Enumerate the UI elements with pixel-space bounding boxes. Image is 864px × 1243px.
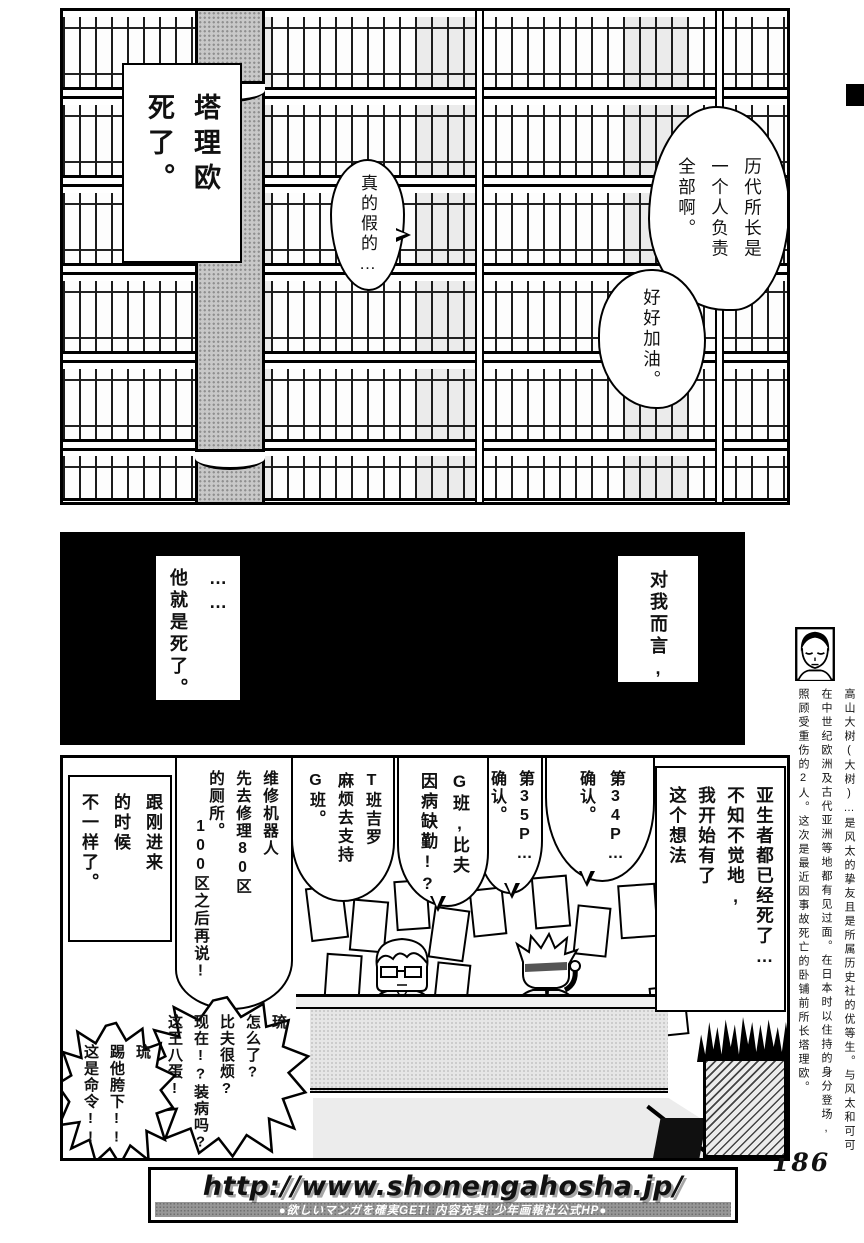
bubble-robot: 维修机器人 先去修理80区 的厕所。 100区之后再说!: [175, 755, 293, 1010]
site-tagline: ●欲しいマンガを確実GET! 内容充実! 少年画報社公式HP●: [155, 1202, 731, 1217]
planter-pot: [703, 1058, 787, 1158]
portrait-icon: [795, 627, 835, 681]
paper: [617, 883, 659, 940]
box-different-text: 跟刚进来 的时候 不一样了。: [72, 777, 168, 893]
bubble-goodluck: 好好加油。: [598, 269, 706, 409]
bubble-t-class-text: T班吉罗 麻烦去支持 G班。: [301, 755, 385, 865]
box-for-me: 对我而言,: [616, 554, 700, 684]
panel-office: 亚生者都已经死了… 不知不觉地, 我开始有了 这个想法 第34P… 确认。 第3…: [60, 755, 790, 1161]
shelf-divider: [475, 11, 484, 502]
manga-page: 塔理欧 死了。 真的假的… 历代所长是 一个人负责 全部啊。 好好加油。 …… …: [0, 0, 864, 1243]
narration-text: 亚生者都已经死了… 不知不觉地, 我开始有了 这个想法: [663, 768, 779, 969]
bubble-p35-text: 第35P… 确认。: [482, 755, 538, 864]
bubble-shout-kick: 琉 踢他胯下!! 这是命令!!: [60, 1020, 177, 1161]
bubble-tail-icon: [579, 871, 595, 895]
doorway-shadow: [653, 1118, 707, 1158]
bubble-p34-text: 第34P… 确认。: [570, 755, 630, 864]
margin-note-text: 高山大树(大树)…是风太的挚友且是所属历史社的优等生。与风太和可可 在中世纪欧洲…: [790, 688, 860, 1188]
bubble-goodluck-text: 好好加油。: [640, 288, 665, 391]
bubble-robot-sub-text: 100区之后再说!: [189, 818, 211, 982]
bubble-tail-icon: [430, 896, 446, 920]
bubble-shout-ryu-text: 琉 怎么了? 比夫很烦? 现在!?装病吗? 这王八蛋!: [161, 1014, 291, 1152]
box-ellipsis-death: …… 他就是死了。: [154, 554, 242, 702]
caption-death-text: 塔理欧 死了。: [136, 65, 228, 198]
bubble-robot-main-text: 维修机器人 先去修理80区 的厕所。: [202, 770, 283, 896]
shelf-board: [63, 498, 787, 505]
bubble-tail-icon: [396, 228, 418, 242]
bubble-p34: 第34P… 确认。: [545, 755, 655, 882]
pillar-band: [195, 449, 265, 470]
bubble-g-class-text: G班,比夫 因病缺勤!?: [411, 755, 475, 896]
box-for-me-text: 对我而言,: [645, 556, 671, 682]
bubble-t-class: T班吉罗 麻烦去支持 G班。: [291, 755, 395, 902]
panel-library: 塔理欧 死了。 真的假的… 历代所长是 一个人负责 全部啊。 好好加油。: [60, 8, 790, 505]
edge-marker: [846, 84, 864, 106]
panel-black: …… 他就是死了。 对我而言,: [60, 532, 745, 745]
footer-banner: http://www.shonengahosha.jp/ ●欲しいマンガを確実G…: [148, 1167, 738, 1223]
narration-box: 亚生者都已经死了… 不知不觉地, 我开始有了 这个想法: [655, 766, 786, 1012]
box-different: 跟刚进来 的时候 不一样了。: [68, 775, 172, 942]
site-url: http://www.shonengahosha.jp/: [151, 1170, 735, 1202]
shelf-board: [63, 439, 787, 451]
bubble-g-class: G班,比夫 因病缺勤!?: [397, 755, 489, 907]
bookshelf-row: [63, 456, 787, 505]
bubble-shout-kick-text: 琉 踢他胯下!! 这是命令!!: [77, 1044, 155, 1147]
caption-death-box: 塔理欧 死了。: [122, 63, 242, 263]
box-ellipsis-death-text: …… 他就是死了。: [158, 556, 238, 700]
planter-grass-icon: [697, 1012, 789, 1062]
counter-desk-front: [310, 1009, 668, 1093]
bubble-tail-icon: [504, 883, 520, 907]
counter-desk-top: [296, 994, 668, 1009]
book-spines: [63, 456, 787, 498]
paper: [531, 875, 571, 930]
bubble-really-text: 真的假的…: [355, 174, 380, 276]
bubble-director-text: 历代所长是 一个人负责 全部啊。: [670, 157, 769, 260]
